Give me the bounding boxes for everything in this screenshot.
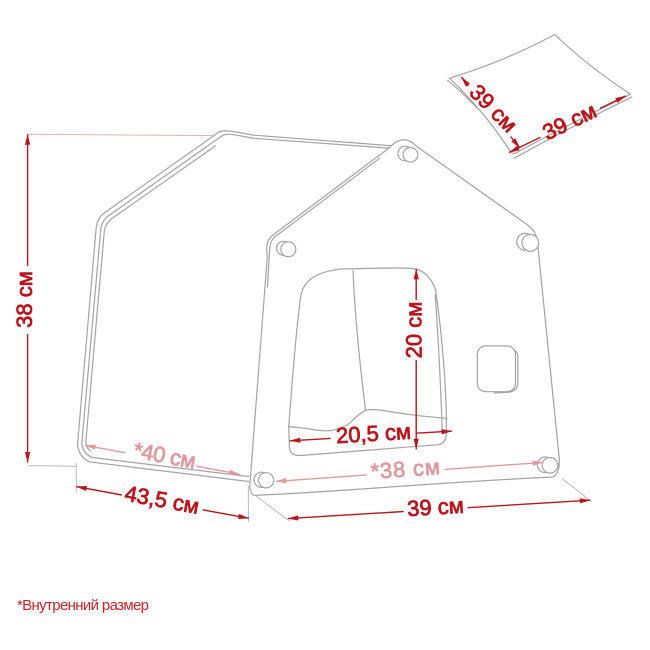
svg-text:39 см: 39 см — [539, 98, 601, 145]
svg-text:43,5 см: 43,5 см — [123, 481, 201, 519]
svg-text:*Внутренний размер: *Внутренний размер — [17, 597, 149, 614]
svg-text:20,5 см: 20,5 см — [335, 419, 411, 448]
svg-text:39 см: 39 см — [406, 493, 464, 521]
svg-text:20 см: 20 см — [402, 302, 427, 359]
svg-text:39 см: 39 см — [465, 79, 523, 137]
svg-text:38 см: 38 см — [12, 271, 37, 328]
svg-text:*38 см: *38 см — [370, 454, 442, 484]
